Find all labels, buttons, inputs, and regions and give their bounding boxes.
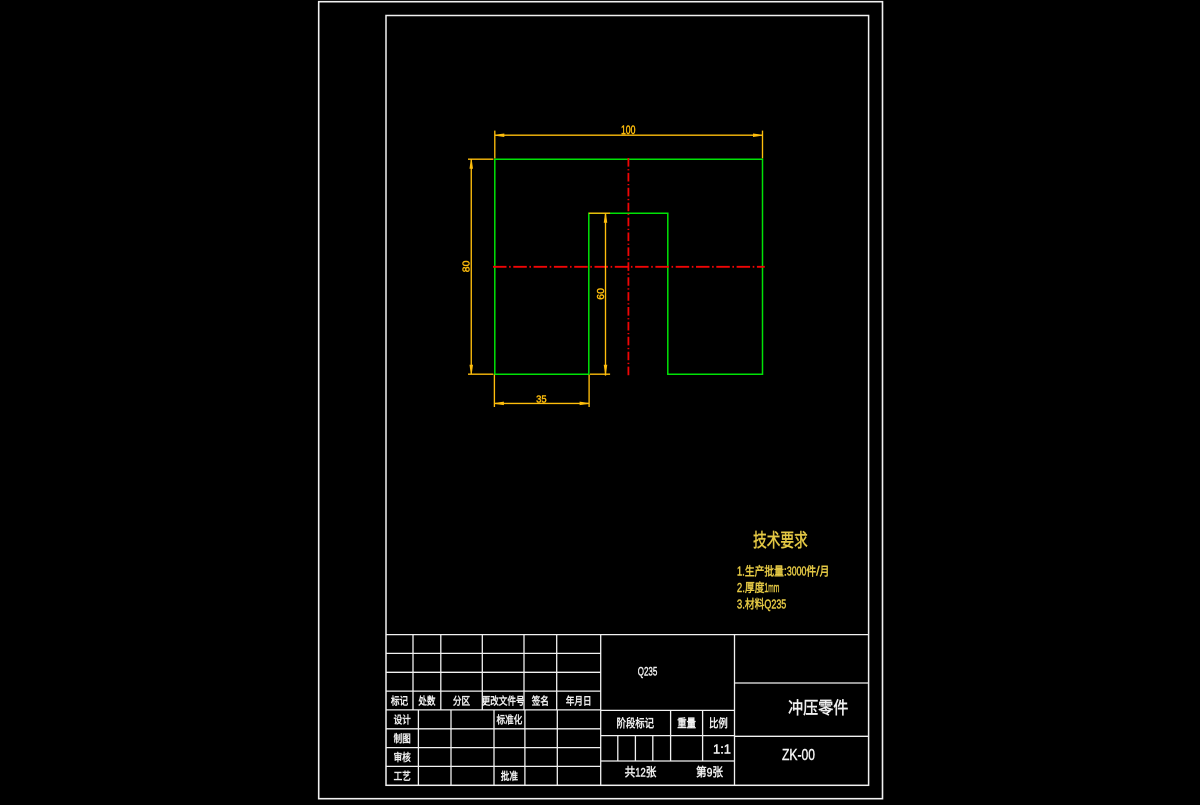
svg-text:60: 60 (595, 288, 607, 300)
svg-text:1.: 1. (737, 565, 745, 579)
svg-text:80: 80 (461, 260, 473, 272)
svg-text:35: 35 (536, 395, 547, 406)
svg-text:3.: 3. (737, 597, 745, 611)
svg-text:1mm: 1mm (764, 581, 779, 595)
svg-text:ZK-00: ZK-00 (782, 747, 815, 764)
svg-text:Q235: Q235 (764, 597, 786, 611)
svg-text:9: 9 (707, 767, 713, 779)
svg-text:3000: 3000 (787, 565, 807, 579)
svg-text:2.: 2. (737, 581, 745, 595)
svg-text:/: / (816, 565, 820, 579)
svg-text:1:1: 1:1 (713, 743, 731, 757)
svg-text:100: 100 (621, 123, 636, 137)
svg-text:12: 12 (635, 767, 646, 779)
svg-text:Q235: Q235 (638, 664, 658, 678)
